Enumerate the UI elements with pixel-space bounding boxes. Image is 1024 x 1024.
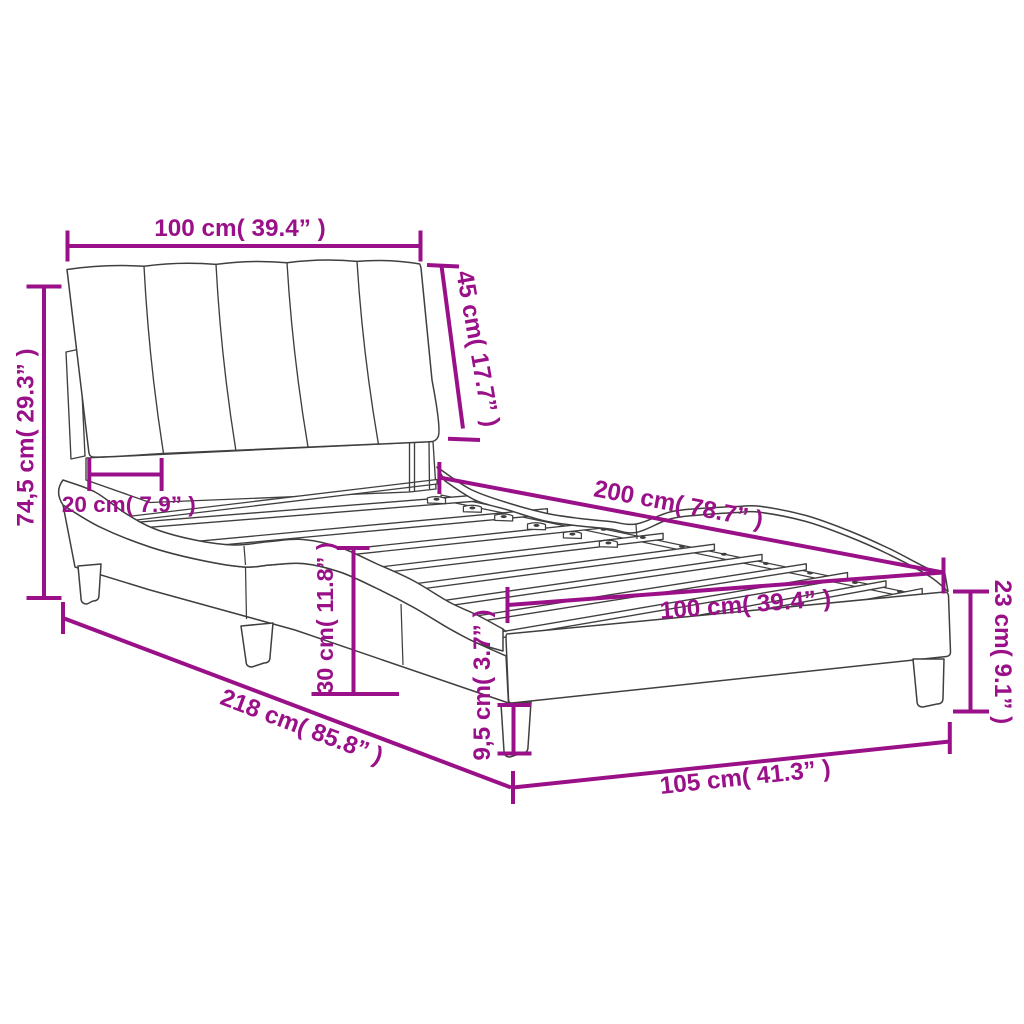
svg-text:100 cm( 39.4” ): 100 cm( 39.4” ) <box>154 215 326 242</box>
svg-text:23 cm( 9.1” ): 23 cm( 9.1” ) <box>989 580 1016 725</box>
svg-text:30 cm( 11.8” ): 30 cm( 11.8” ) <box>312 542 338 694</box>
svg-text:20 cm( 7.9” ): 20 cm( 7.9” ) <box>62 492 196 517</box>
svg-text:74,5 cm( 29.3” ): 74,5 cm( 29.3” ) <box>13 348 40 526</box>
svg-text:9,5 cm( 3.7” ): 9,5 cm( 3.7” ) <box>469 609 496 760</box>
svg-text:218 cm( 85.8” ): 218 cm( 85.8” ) <box>217 684 387 770</box>
